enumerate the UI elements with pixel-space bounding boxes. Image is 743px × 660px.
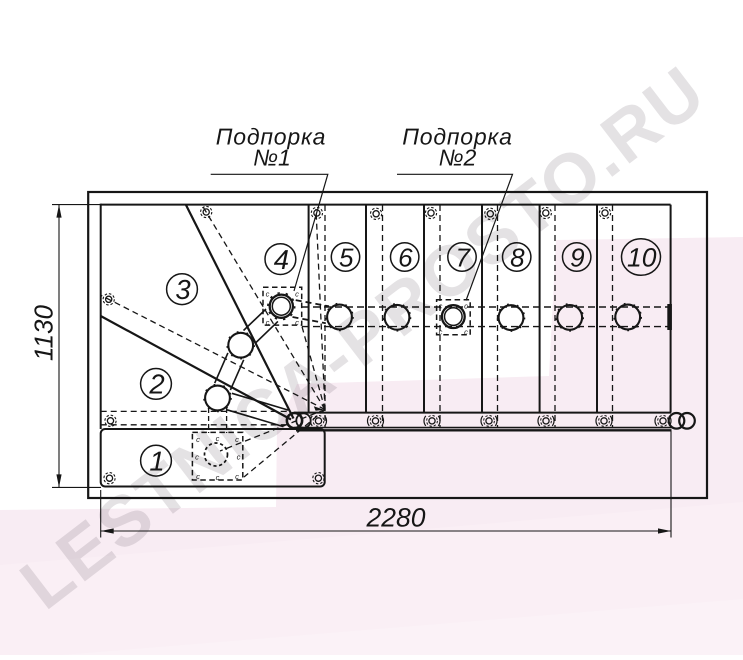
svg-text:c: c — [464, 328, 468, 337]
svg-text:c: c — [295, 290, 299, 299]
svg-text:4: 4 — [274, 244, 289, 275]
svg-text:3: 3 — [175, 274, 191, 305]
svg-text:c: c — [235, 472, 239, 481]
svg-text:1130: 1130 — [29, 305, 59, 361]
svg-text:c: c — [235, 435, 239, 444]
svg-text:c: c — [216, 473, 220, 482]
svg-text:9: 9 — [570, 242, 584, 272]
svg-text:8: 8 — [510, 242, 525, 272]
svg-text:2280: 2280 — [366, 502, 426, 532]
svg-text:6: 6 — [398, 242, 413, 272]
svg-text:5: 5 — [339, 242, 354, 272]
svg-text:c: c — [266, 318, 270, 327]
svg-text:c: c — [195, 453, 199, 462]
svg-text:1: 1 — [149, 446, 164, 477]
svg-text:c: c — [216, 434, 220, 443]
svg-text:10: 10 — [627, 243, 657, 273]
svg-text:c: c — [439, 328, 443, 337]
svg-text:c: c — [196, 472, 200, 481]
svg-text:c: c — [196, 435, 200, 444]
svg-text:№2: №2 — [439, 145, 477, 171]
svg-text:7: 7 — [455, 242, 471, 272]
svg-text:c: c — [439, 302, 443, 311]
svg-text:№1: №1 — [253, 145, 291, 171]
svg-text:c: c — [266, 290, 270, 299]
svg-text:c: c — [295, 318, 299, 327]
svg-text:c: c — [237, 453, 241, 462]
svg-text:c: c — [464, 302, 468, 311]
svg-text:2: 2 — [148, 369, 164, 400]
